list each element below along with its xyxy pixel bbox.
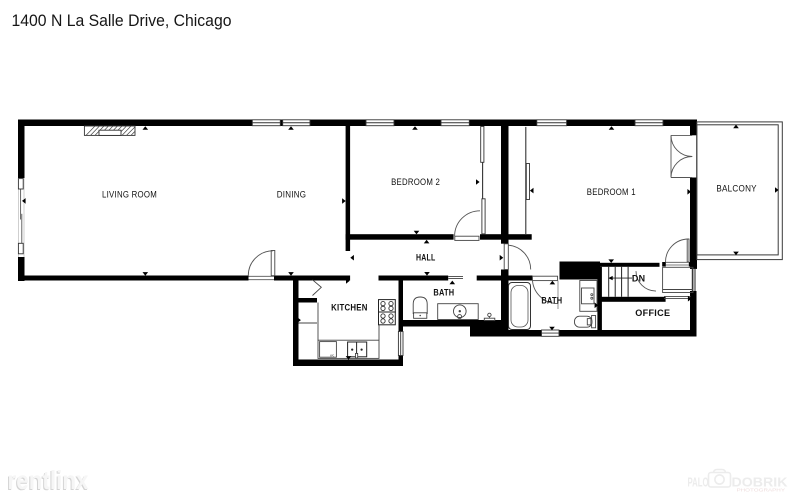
svg-text:LIVING ROOM: LIVING ROOM [102,189,157,200]
svg-text:KITCHEN: KITCHEN [331,302,368,313]
svg-text:OFFICE: OFFICE [635,307,670,318]
svg-text:1400 N La Salle Drive, Chicago: 1400 N La Salle Drive, Chicago [12,12,232,30]
svg-text:PHOTOGRAPHY: PHOTOGRAPHY [737,488,787,494]
svg-text:DN: DN [632,273,646,283]
svg-text:BEDROOM 2: BEDROOM 2 [391,176,440,187]
svg-text:DINING: DINING [277,189,307,200]
svg-text:BATH: BATH [541,294,562,305]
svg-text:BALCONY: BALCONY [716,182,757,193]
svg-text:HALL: HALL [416,251,436,262]
svg-text:DOBRIK: DOBRIK [732,475,789,490]
svg-text:wc: wc [330,354,334,358]
svg-text:BATH: BATH [433,286,454,297]
svg-text:rentlinx: rentlinx [8,465,89,495]
svg-text:BEDROOM 1: BEDROOM 1 [587,186,636,197]
svg-text:PALO: PALO [688,475,709,490]
